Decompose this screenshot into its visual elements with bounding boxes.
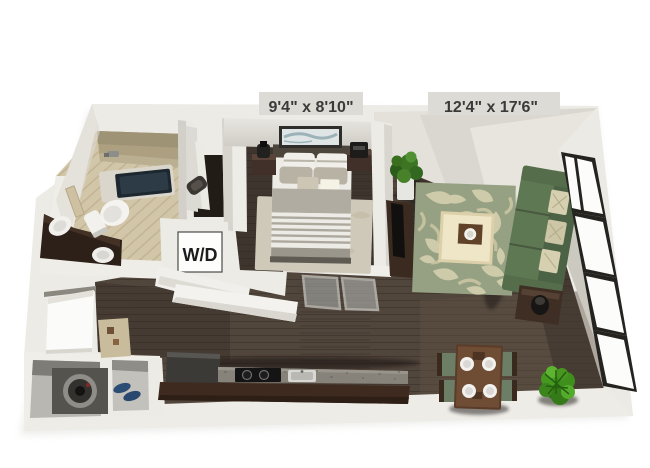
svg-text:12'4" x 17'6": 12'4" x 17'6" xyxy=(444,99,538,116)
svg-text:9'4" x 8'10": 9'4" x 8'10" xyxy=(268,99,353,116)
svg-text:W/D: W/D xyxy=(183,245,218,265)
